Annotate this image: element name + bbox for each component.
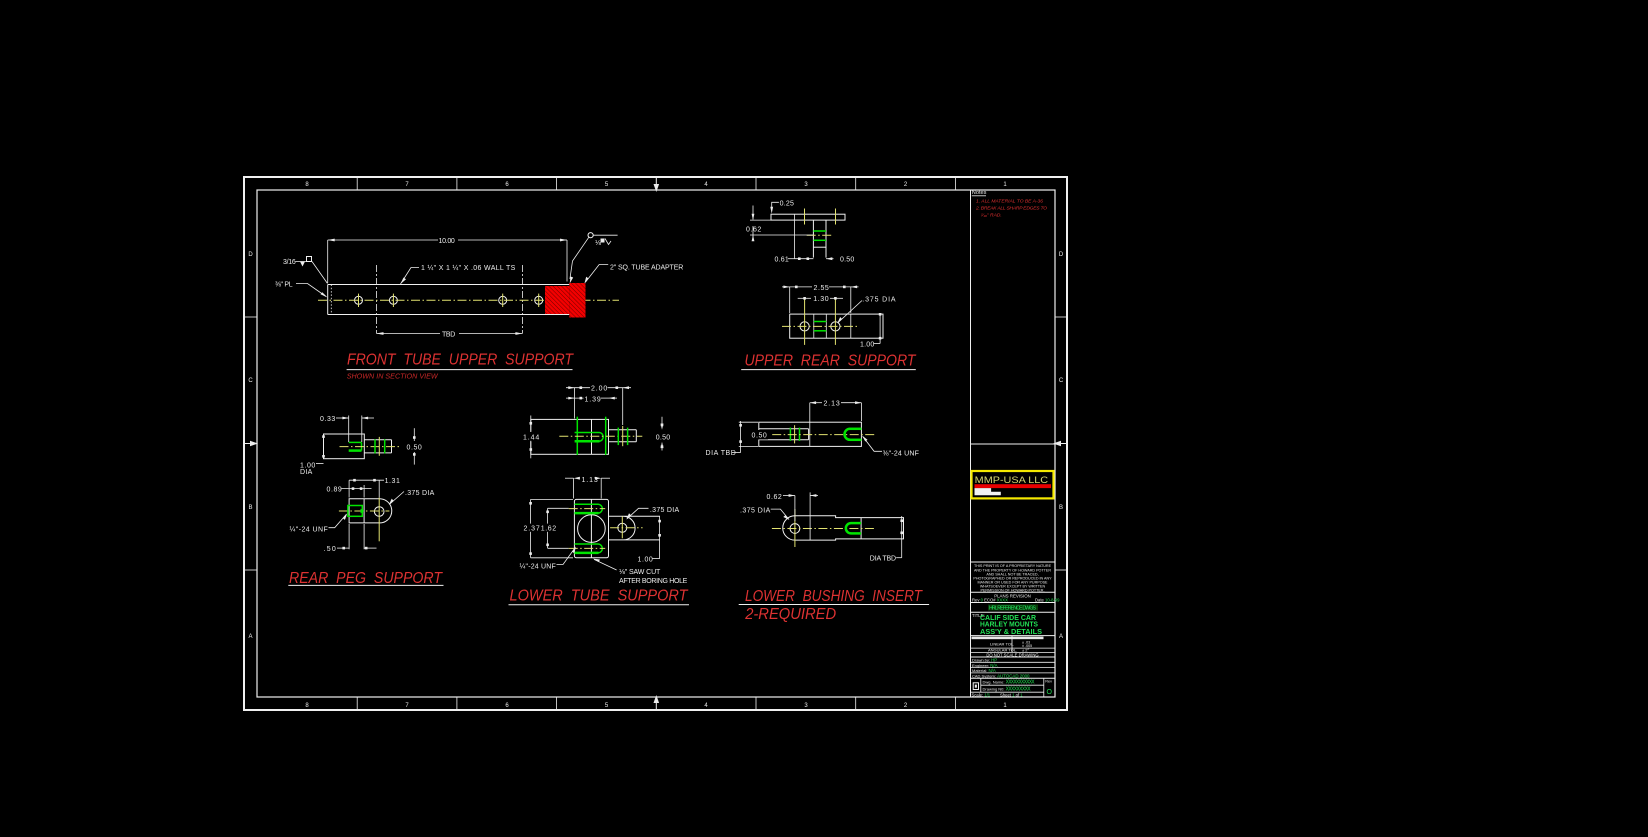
- svg-text:Sheet 1 of 1: Sheet 1 of 1: [1000, 692, 1023, 697]
- svg-text:2.00: 2.00: [591, 386, 607, 393]
- svg-text:¼"-24 UNF: ¼"-24 UNF: [290, 526, 328, 533]
- svg-text:TBD: TBD: [442, 331, 455, 338]
- svg-text:HRL REFERENCE DWGS: HRL REFERENCE DWGS: [989, 606, 1037, 612]
- svg-text:LINEAR TOL.: LINEAR TOL.: [990, 642, 1014, 647]
- svg-text:1 ¼" X 1 ¼" X .06 WALL TS: 1 ¼" X 1 ¼" X .06 WALL TS: [421, 265, 516, 272]
- svg-text:A: A: [1059, 634, 1063, 640]
- svg-text:1.00: 1.00: [860, 341, 874, 348]
- svg-text:1.62: 1.62: [541, 526, 556, 533]
- svg-text:2. BREAK ALL SHARP EDGES TO: 2. BREAK ALL SHARP EDGES TO: [975, 206, 1047, 212]
- svg-text:0.89: 0.89: [327, 487, 342, 494]
- svg-text:FRONT TUBE UPPER SUPPORT: FRONT TUBE UPPER SUPPORT: [347, 352, 574, 369]
- svg-text:C: C: [1059, 378, 1064, 384]
- svg-text:0.62: 0.62: [767, 494, 782, 501]
- svg-text:UPPER REAR SUPPORT: UPPER REAR SUPPORT: [745, 353, 917, 370]
- svg-text:C: C: [248, 378, 253, 384]
- svg-text:CAD System: AUTOCAD 2000: CAD System: AUTOCAD 2000: [972, 673, 1030, 678]
- svg-text:REAR PEG SUPPORT: REAR PEG SUPPORT: [289, 570, 443, 587]
- svg-text:0.61: 0.61: [775, 257, 789, 264]
- svg-text:.375 DIA: .375 DIA: [740, 508, 771, 515]
- svg-text:SHOWN IN SECTION VIEW: SHOWN IN SECTION VIEW: [347, 372, 439, 381]
- svg-text:Scale: 1/1: Scale: 1/1: [972, 692, 991, 697]
- svg-text:⅜" PL: ⅜" PL: [275, 282, 293, 289]
- svg-text:0.50: 0.50: [840, 257, 854, 264]
- svg-text:DIA TBD: DIA TBD: [706, 450, 736, 457]
- svg-text:0.50: 0.50: [656, 435, 670, 442]
- svg-text:Rev: Rev: [1045, 680, 1052, 684]
- svg-text:1.00: 1.00: [638, 557, 653, 564]
- svg-text:1.13: 1.13: [582, 477, 598, 484]
- svg-text:¼"-24 UNF: ¼"-24 UNF: [520, 563, 556, 570]
- svg-text:Engineer: N/A: Engineer: N/A: [972, 663, 998, 668]
- svg-text:¹⁄₁₆" RAD.: ¹⁄₁₆" RAD.: [981, 213, 1002, 219]
- svg-text:⅜"-24 UNF: ⅜"-24 UNF: [883, 450, 919, 457]
- svg-text:DIA: DIA: [300, 469, 313, 476]
- svg-text:0.50: 0.50: [752, 433, 767, 440]
- svg-text:.375 DIA: .375 DIA: [862, 296, 896, 303]
- svg-text:ASS'Y & DETAILS: ASS'Y & DETAILS: [980, 627, 1042, 636]
- svg-text:10.00: 10.00: [439, 238, 455, 245]
- svg-text:3/16: 3/16: [283, 259, 296, 266]
- svg-text:⅛: ⅛: [595, 240, 601, 247]
- svg-text:2.13: 2.13: [824, 401, 840, 408]
- svg-text:1.31: 1.31: [385, 478, 400, 485]
- svg-text:Drawn by: HP: Drawn by: HP: [972, 658, 997, 663]
- svg-text:O: O: [1047, 689, 1053, 696]
- svg-text:2" SQ. TUBE ADAPTER: 2" SQ. TUBE ADAPTER: [610, 265, 683, 272]
- svg-text:A: A: [248, 634, 252, 640]
- svg-text:2.37: 2.37: [524, 526, 540, 533]
- svg-text:D: D: [248, 252, 253, 258]
- svg-text:0.33: 0.33: [320, 416, 335, 423]
- svg-text:B: B: [248, 505, 252, 511]
- svg-text:.375 DIA: .375 DIA: [650, 507, 680, 514]
- svg-text:LOWER TUBE SUPPORT: LOWER TUBE SUPPORT: [510, 588, 689, 605]
- svg-text:0.25: 0.25: [780, 201, 794, 208]
- svg-text:1. ALL MATERIAL TO BE A-36: 1. ALL MATERIAL TO BE A-36: [976, 198, 1043, 204]
- svg-text:Material: N/A: Material: N/A: [972, 668, 996, 673]
- svg-text:AFTER BORING HOLE: AFTER BORING HOLE: [619, 578, 688, 585]
- svg-text:Rev 0 ECO# XXXX: Rev 0 ECO# XXXX: [972, 598, 1008, 603]
- svg-text:2.55: 2.55: [814, 285, 829, 292]
- svg-text:1.30: 1.30: [813, 296, 828, 303]
- svg-text:B: B: [1059, 505, 1063, 511]
- svg-text:.375 DIA: .375 DIA: [405, 490, 435, 497]
- svg-text:0.62: 0.62: [746, 226, 761, 233]
- svg-text:D: D: [1059, 252, 1064, 258]
- svg-text:2-REQUIRED: 2-REQUIRED: [744, 606, 836, 623]
- svg-text:0.50: 0.50: [407, 444, 422, 451]
- svg-text:1.39: 1.39: [585, 396, 601, 403]
- svg-text:DIA TBD: DIA TBD: [870, 556, 896, 563]
- svg-text:Notes: Notes: [972, 190, 987, 196]
- svg-text:1.44: 1.44: [523, 434, 539, 441]
- svg-text:LOWER BUSHING INSERT: LOWER BUSHING INSERT: [745, 588, 923, 605]
- svg-text:⅛" SAW CUT: ⅛" SAW CUT: [619, 569, 661, 576]
- svg-text:Date 10-8-99: Date 10-8-99: [1035, 598, 1060, 603]
